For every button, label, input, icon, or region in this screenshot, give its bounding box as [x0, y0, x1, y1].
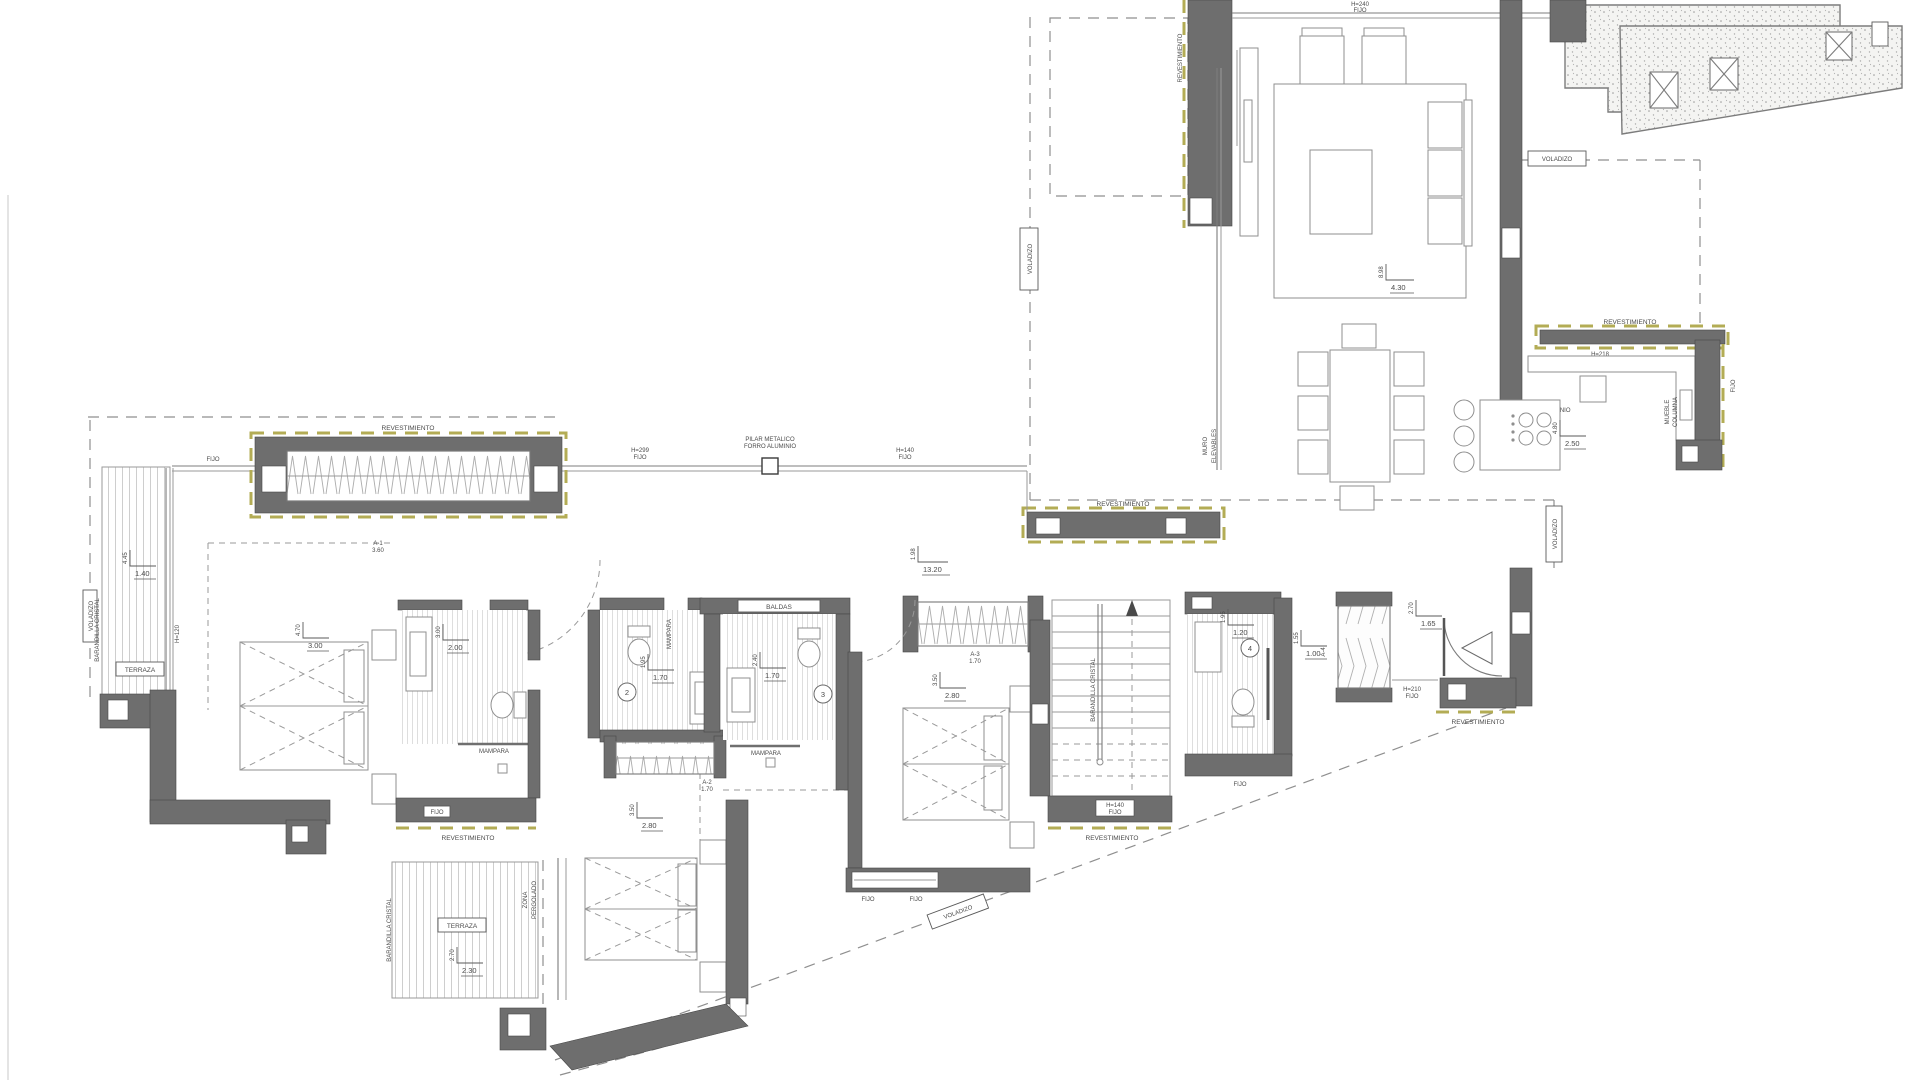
dim-entry: 2.70 1.65 — [1409, 600, 1442, 629]
svg-text:TERRAZA: TERRAZA — [447, 923, 478, 930]
svg-text:VOLADIZO: VOLADIZO — [1542, 157, 1573, 163]
wall — [1695, 340, 1720, 444]
svg-text:VOLADIZO: VOLADIZO — [1553, 518, 1559, 549]
entry-hall: 1.55 1.00 A-4 2.70 1.65 H=210 FIJO REVES… — [1294, 568, 1532, 726]
svg-text:FIJO: FIJO — [1406, 694, 1419, 700]
svg-text:ZONA: ZONA — [523, 892, 529, 909]
svg-text:FIJO: FIJO — [634, 455, 647, 461]
svg-text:COLUMNA: COLUMNA — [1673, 397, 1679, 427]
terraza-label: TERRAZA — [116, 662, 164, 676]
dining-table — [1298, 324, 1424, 510]
svg-text:2.30: 2.30 — [462, 966, 477, 975]
svg-text:1.70: 1.70 — [969, 659, 981, 665]
angled-wall — [550, 1004, 748, 1070]
kitchen-sink — [1580, 376, 1606, 402]
svg-text:1.70: 1.70 — [653, 673, 668, 682]
svg-text:3.00: 3.00 — [308, 641, 323, 650]
svg-text:PILAR METALICO: PILAR METALICO — [745, 437, 795, 443]
dim-bedroom-2: 3.50 2.80 — [933, 672, 966, 701]
svg-text:2.80: 2.80 — [945, 691, 960, 700]
window-label-top: H=240 FIJO — [1351, 2, 1370, 14]
window-label: H=210 FIJO — [1403, 687, 1422, 700]
svg-text:1.55: 1.55 — [1294, 632, 1300, 644]
mampara-label: MAMPARA — [667, 619, 673, 649]
window-label: H=140 FIJO — [896, 448, 915, 461]
svg-text:3.50: 3.50 — [933, 674, 939, 686]
window-label: FIJO — [910, 897, 923, 903]
louver-window-a3: A-3 1.70 — [903, 596, 1043, 665]
wall — [1185, 754, 1292, 776]
svg-text:FIJO: FIJO — [1354, 8, 1367, 14]
svg-text:FIJO: FIJO — [899, 455, 912, 461]
window-label-boxed: FIJO — [424, 806, 450, 817]
dim-bedroom-3: 3.50 2.80 — [630, 802, 663, 831]
svg-text:1.95: 1.95 — [641, 656, 647, 668]
roof-terrace-stippled — [1565, 5, 1902, 134]
terraza-label: TERRAZA — [438, 918, 486, 932]
svg-text:1.98: 1.98 — [911, 548, 917, 560]
coffee-table — [1310, 150, 1372, 234]
svg-text:VOLADIZO: VOLADIZO — [1028, 243, 1034, 274]
skylight-box — [1650, 72, 1678, 108]
svg-text:2.70: 2.70 — [450, 949, 456, 961]
kitchen-island — [1454, 400, 1560, 472]
barandilla-label: BARANDILLA CRISTAL — [1091, 658, 1097, 722]
svg-text:1.40: 1.40 — [135, 569, 150, 578]
revestimiento-label: REVESTIMIENTO — [382, 425, 435, 432]
bed-1 — [240, 630, 396, 804]
svg-text:ELEVABLES: ELEVABLES — [1212, 429, 1218, 463]
bathroom-1: MAMPARA FIJO REVESTIMIENTO 3.00 2.00 — [396, 600, 540, 842]
svg-text:2.80: 2.80 — [642, 821, 657, 830]
door-number-3: 3 — [814, 685, 832, 703]
svg-text:A-1: A-1 — [373, 541, 383, 547]
svg-text:H=140: H=140 — [1106, 803, 1125, 809]
shower-drain — [766, 758, 775, 767]
wall — [1188, 0, 1232, 226]
bed-2 — [903, 686, 1034, 848]
svg-text:H=140: H=140 — [896, 448, 915, 454]
door-number-2: 2 — [618, 683, 636, 701]
svg-text:13.20: 13.20 — [923, 565, 942, 574]
stool — [1454, 400, 1474, 420]
revestimiento-label: REVESTIMIENTO — [1452, 719, 1505, 726]
entry-arrow — [1462, 632, 1492, 664]
toilet — [1232, 689, 1254, 727]
svg-text:4: 4 — [1248, 644, 1252, 653]
svg-text:4.45: 4.45 — [123, 552, 129, 564]
door-number-4: 4 — [1241, 639, 1259, 657]
wardrobe — [1336, 592, 1392, 702]
wall — [396, 798, 536, 822]
window-label-a1: A-1 3.60 — [372, 541, 384, 554]
svg-text:MURO: MURO — [1203, 437, 1209, 456]
stool — [1454, 426, 1474, 446]
louver-window-a2: A-2 1.70 — [604, 736, 726, 793]
fijo-label: FIJO — [207, 457, 220, 463]
vanity — [1195, 622, 1221, 672]
svg-text:4.80: 4.80 — [1553, 422, 1559, 434]
window-label: FIJO — [862, 897, 875, 903]
skylight-box — [1826, 32, 1852, 60]
bed-3 — [585, 840, 726, 992]
baldas-shelf: BALDAS — [738, 600, 820, 612]
bedroom-2: A-3 1.70 3.50 2.80 FIJO FIJO — [846, 596, 1050, 903]
svg-text:3.60: 3.60 — [372, 548, 384, 554]
toilet — [491, 692, 526, 718]
svg-text:2: 2 — [625, 688, 629, 697]
window-label: H=299 FIJO — [631, 448, 650, 461]
svg-text:4.30: 4.30 — [1391, 283, 1406, 292]
window-label-a4: A-4 — [1321, 647, 1327, 657]
fijo-label: FIJO — [1731, 379, 1737, 392]
svg-text:FIJO: FIJO — [431, 810, 444, 816]
svg-text:2.70: 2.70 — [1409, 602, 1415, 614]
floor-plan-drawing: VOLADIZO VOLADIZO VOLADIZO VOLADIZO VOLA… — [0, 0, 1920, 1080]
svg-text:FIJO: FIJO — [1109, 810, 1122, 816]
svg-text:1.70: 1.70 — [701, 787, 713, 793]
floor-plan-page: VOLADIZO VOLADIZO VOLADIZO VOLADIZO VOLA… — [0, 0, 1920, 1080]
kitchen: REVESTIMIENTO H=218 FIJO ALUMINIO MUEBLE… — [1454, 319, 1737, 472]
barandilla-label: BARANDILLA CRISTAL — [95, 598, 101, 662]
wall — [1550, 0, 1586, 42]
terrace-nw: BARANDILLA CRISTAL TERRAZA 4.45 1.40 H=1… — [95, 467, 181, 728]
svg-text:1.70: 1.70 — [765, 671, 780, 680]
svg-text:A-2: A-2 — [702, 780, 712, 786]
pilar-metalico: PILAR METALICO FORRO ALUMINIO — [744, 437, 796, 474]
bathroom-4: 1.95 1.20 4 FIJO — [1185, 592, 1292, 788]
svg-text:2.00: 2.00 — [448, 643, 463, 652]
dim-corridor: 1.98 13.20 — [911, 546, 950, 575]
louver-wall-a1: REVESTIMIENTO A-1 3.60 — [251, 425, 566, 554]
voladizo-label-diagonal: VOLADIZO — [927, 894, 988, 929]
svg-text:A-3: A-3 — [970, 652, 980, 658]
skylight-box-small — [1872, 22, 1888, 46]
stair-up-arrow — [1126, 600, 1138, 616]
svg-text:1.95: 1.95 — [1221, 611, 1227, 623]
window-label: FIJO — [1234, 782, 1247, 788]
terrace-deck — [102, 467, 170, 695]
svg-text:2.50: 2.50 — [1565, 439, 1580, 448]
svg-text:4.70: 4.70 — [296, 624, 302, 636]
revestimiento-label: REVESTIMIENTO — [1086, 835, 1139, 842]
voladizo-label-vertical-living: VOLADIZO — [1020, 228, 1038, 290]
mueble-columna-label: MUEBLE COLUMNA — [1665, 397, 1679, 427]
wall — [726, 800, 748, 1004]
svg-text:8.98: 8.98 — [1379, 266, 1385, 278]
svg-text:3.00: 3.00 — [436, 626, 442, 638]
revestimiento-label: REVESTIMIENTO — [1178, 33, 1184, 82]
voladizo-label-entry: VOLADIZO — [1546, 506, 1562, 562]
svg-text:PERGOLADO: PERGOLADO — [532, 881, 538, 919]
svg-text:H=299: H=299 — [631, 448, 650, 454]
voladizo-label-kitchen: VOLADIZO — [1528, 151, 1586, 166]
revestimiento-label: REVESTIMIENTO — [442, 835, 495, 842]
sofa — [1428, 100, 1472, 246]
svg-text:TERRAZA: TERRAZA — [125, 667, 156, 674]
svg-text:FORRO ALUMINIO: FORRO ALUMINIO — [744, 444, 796, 450]
svg-text:1.00: 1.00 — [1306, 649, 1321, 658]
h-label: H=120 — [175, 624, 181, 643]
skylight-box — [1710, 58, 1738, 90]
svg-text:1.65: 1.65 — [1421, 619, 1436, 628]
svg-text:3.50: 3.50 — [630, 804, 636, 816]
svg-text:MUEBLE: MUEBLE — [1665, 400, 1671, 425]
mampara-label: MAMPARA — [479, 749, 509, 755]
mampara-label: MAMPARA — [751, 751, 781, 757]
shower-drain — [498, 764, 507, 773]
stool — [1454, 452, 1474, 472]
barandilla-label: BARANDILLA CRISTAL — [387, 898, 393, 962]
staircase: BARANDILLA CRISTAL H=140 FIJO REVESTIMIE… — [1048, 600, 1172, 842]
muro-elevables-label: MURO ELEVABLES — [1203, 429, 1218, 463]
toilet — [798, 628, 820, 667]
svg-text:BALDAS: BALDAS — [766, 604, 792, 611]
svg-text:H=210: H=210 — [1403, 687, 1422, 693]
svg-text:1.20: 1.20 — [1233, 628, 1248, 637]
svg-text:3: 3 — [821, 690, 825, 699]
svg-text:2.40: 2.40 — [753, 654, 759, 666]
